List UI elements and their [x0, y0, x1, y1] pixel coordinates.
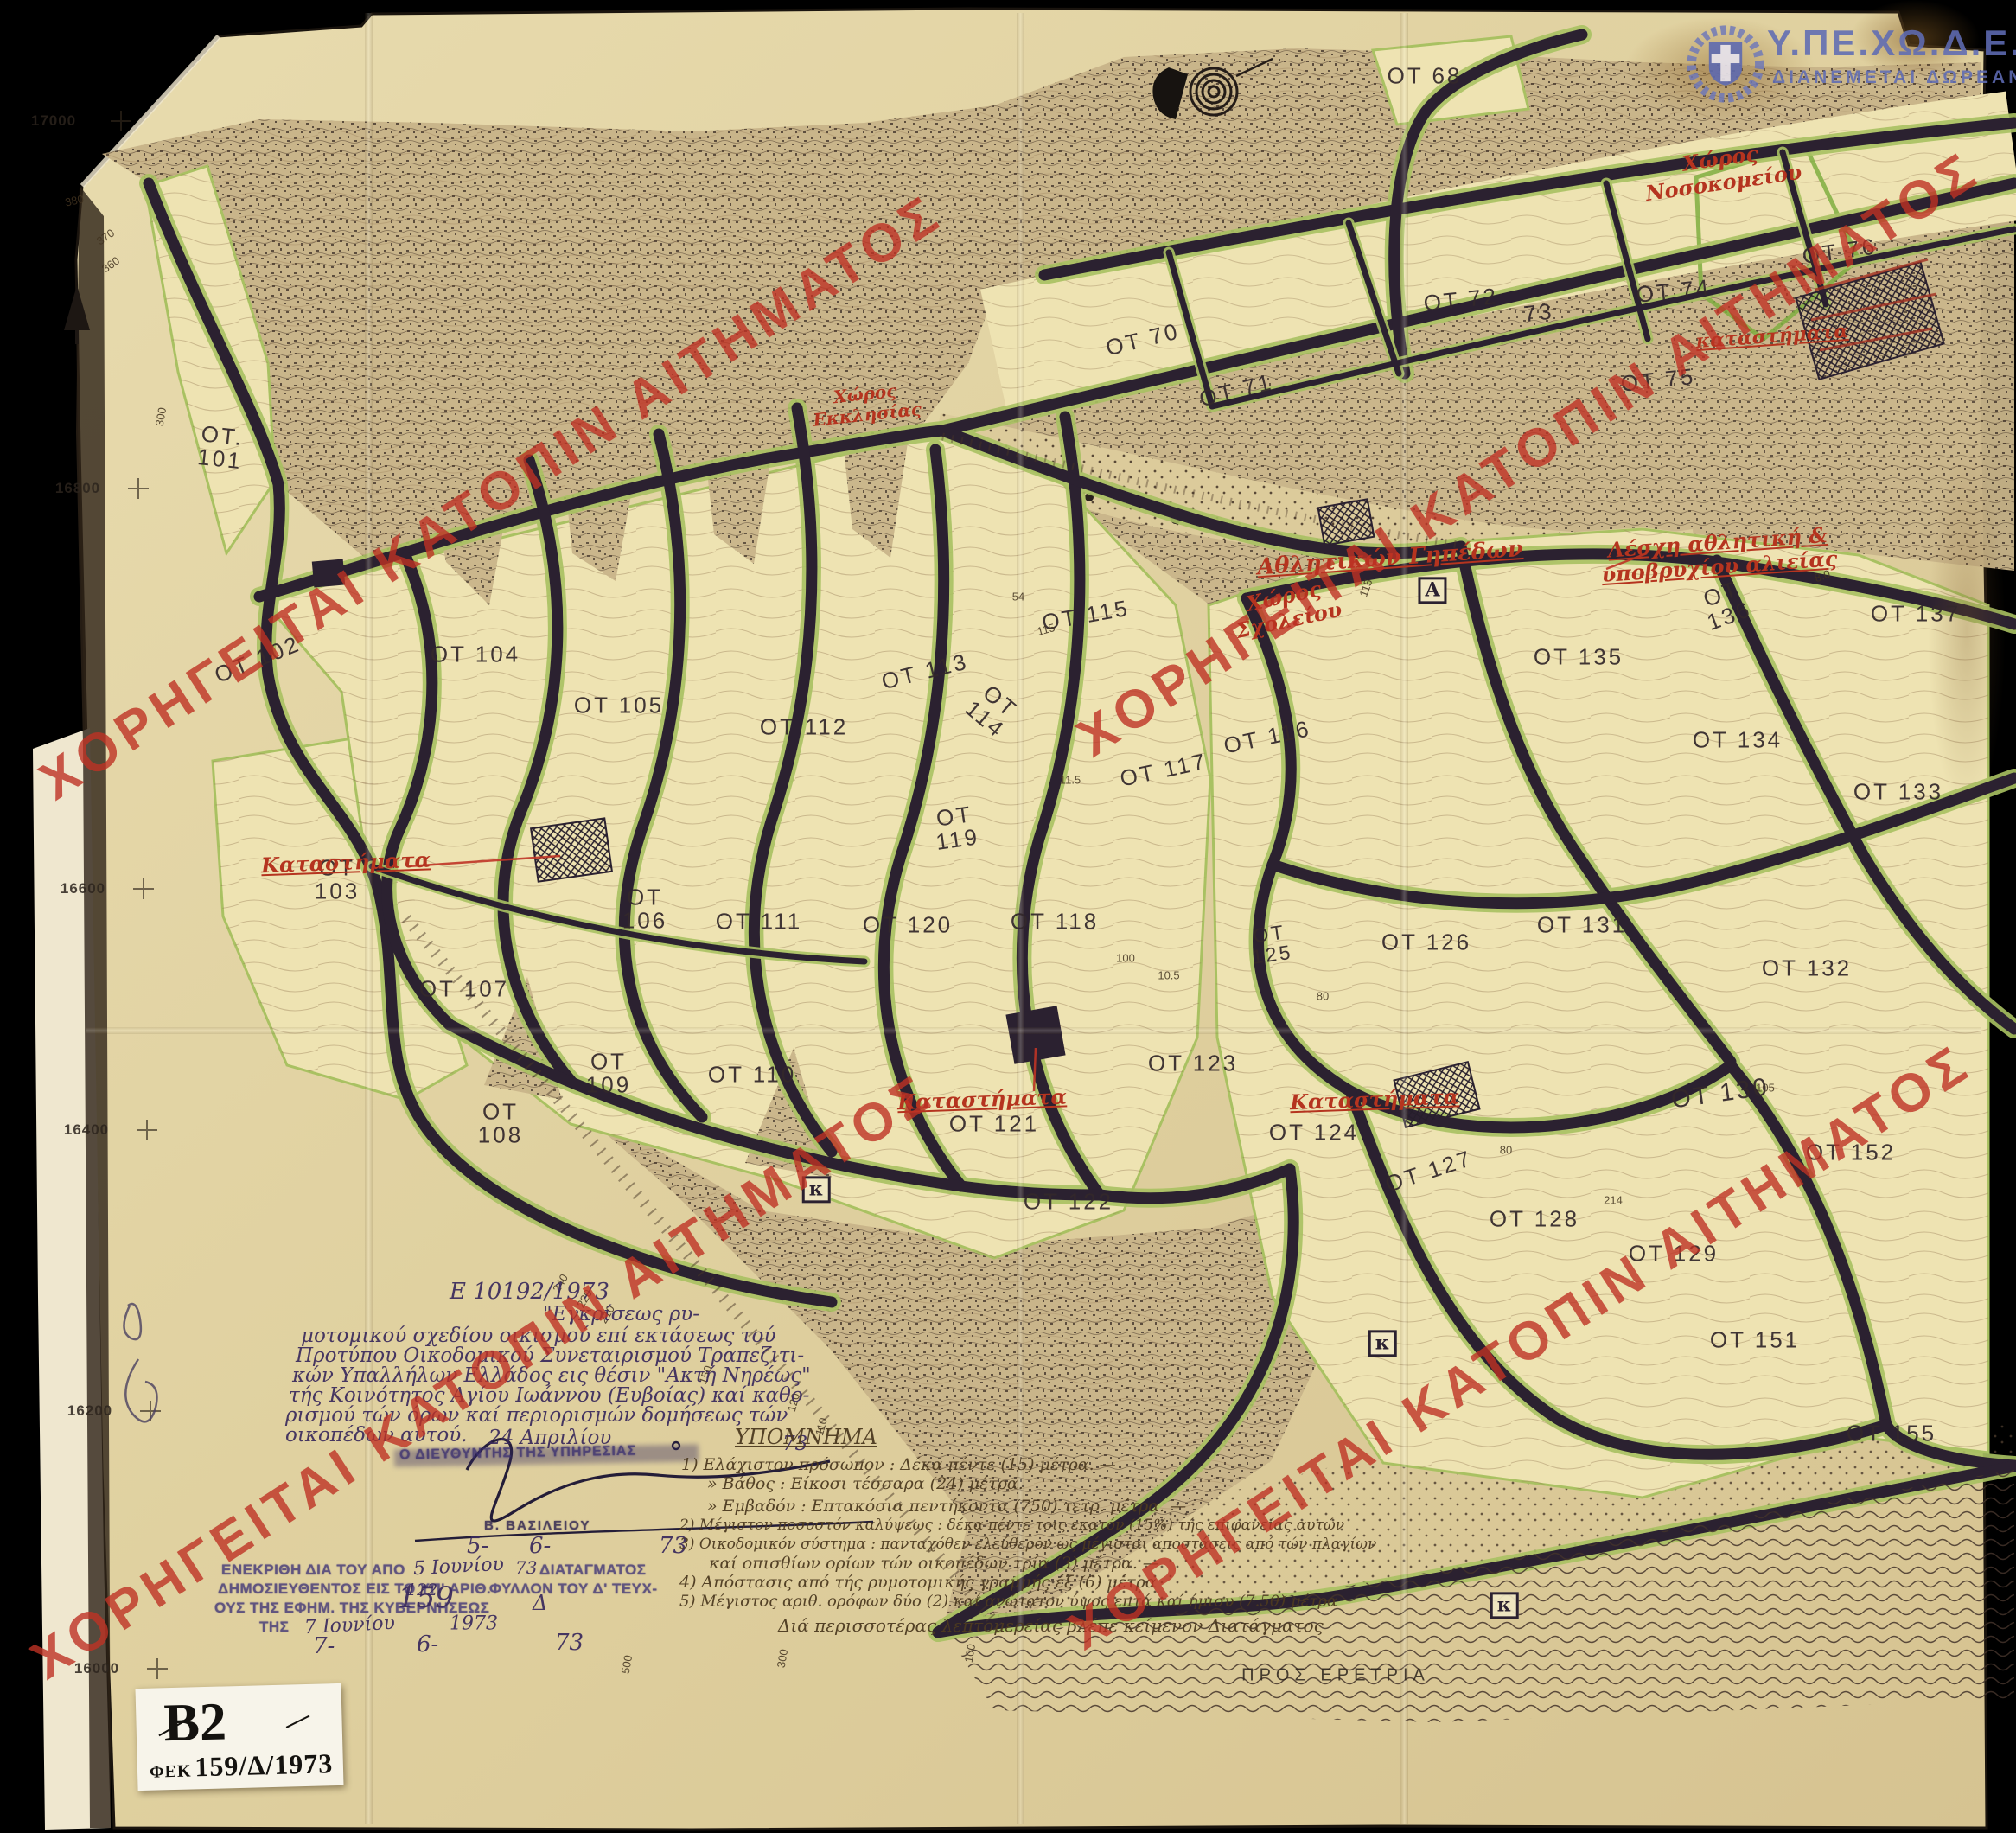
ministry-logo: Υ.ΠΕ.ΧΩ.Δ.Ε. ΔΙΑΝΕΜΕΤΑΙ ΔΩΡΕΑΝ	[1684, 22, 2016, 105]
distribution-note: ΔΙΑΝΕΜΕΤΑΙ ΔΩΡΕΑΝ	[1772, 67, 2016, 88]
scanned-map-sheet: Υ.ΠΕ.ΧΩ.Δ.Ε. ΔΙΑΝΕΜΕΤΑΙ ΔΩΡΕΑΝ B2 ΦΕΚ 15…	[0, 0, 2016, 1833]
map-canvas	[0, 0, 2016, 1833]
gazette-number: 159/Δ/1973	[195, 1747, 334, 1782]
signer-name: Β. ΒΑΣΙΛΕΙΟΥ	[484, 1518, 590, 1533]
sheet-code: B2	[163, 1691, 227, 1754]
gazette-prefix: ΦΕΚ	[150, 1761, 192, 1781]
sheet-code-sticker: B2 ΦΕΚ 159/Δ/1973	[135, 1683, 343, 1791]
greek-coat-of-arms-icon	[1684, 22, 1767, 105]
service-director-stamp: Ο ΔΙΕΥΘΥΝΤΗΣ ΤΗΣ ΥΠΗΡΕΣΙΑΣ	[399, 1444, 636, 1464]
pen-slash-mark	[286, 1715, 310, 1728]
ministry-name: Υ.ΠΕ.ΧΩ.Δ.Ε.	[1767, 22, 2016, 64]
